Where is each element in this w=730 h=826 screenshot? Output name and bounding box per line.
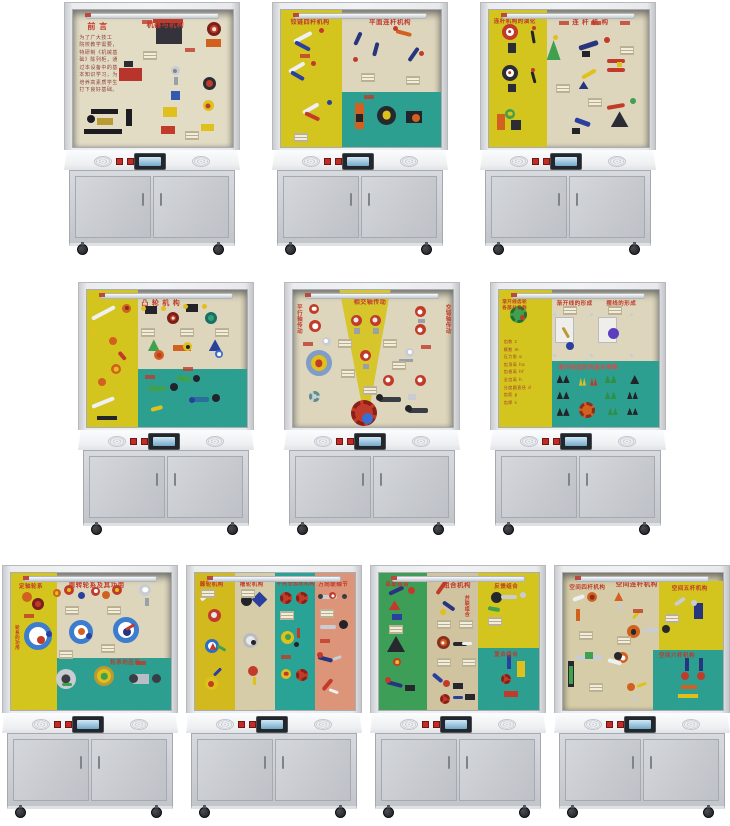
cabinet-door-left xyxy=(75,176,151,238)
model-tri xyxy=(579,81,589,89)
display-case: 机器与机构前 言为了广大技工 院校教学需要， 特研制《机械基 础》陈列柜，通 过… xyxy=(64,2,240,150)
caster-wheel xyxy=(519,807,530,818)
control-screen xyxy=(134,153,166,170)
panel-label: 棘轮机构 xyxy=(200,581,224,589)
cabinet-door-right xyxy=(153,176,229,238)
speaker-grille-icon xyxy=(108,436,126,447)
model-tag xyxy=(633,609,643,613)
model-rect xyxy=(508,43,516,53)
model-rect xyxy=(124,61,133,67)
caster-wheel xyxy=(91,524,102,535)
caster-wheel xyxy=(421,244,432,255)
model-hub xyxy=(418,378,423,383)
door-handle xyxy=(80,756,82,769)
indicator-button xyxy=(127,158,134,165)
model-hub xyxy=(418,309,423,314)
model-hub xyxy=(173,69,177,73)
model-disc xyxy=(553,35,558,40)
model-rect xyxy=(97,118,113,125)
speaker-grille-icon xyxy=(584,719,602,730)
cabinet-jx07: 定轴轮系周转轮系及其功用轮系的应用轮系的功用 xyxy=(2,565,178,818)
model-card xyxy=(617,636,631,645)
model-hub xyxy=(210,317,213,320)
screen-display xyxy=(629,720,651,729)
cabinet-door-right xyxy=(167,456,243,518)
model-rect xyxy=(126,109,132,126)
model-disc xyxy=(383,375,394,386)
panel-label: 连杆机构的演化 xyxy=(494,18,536,26)
model-tag xyxy=(559,21,569,25)
control-deck xyxy=(78,430,254,450)
door-handle xyxy=(282,756,284,769)
model-card xyxy=(363,386,377,395)
speaker-grille-icon xyxy=(400,156,418,167)
model-disc xyxy=(46,631,52,637)
model-bar xyxy=(462,642,472,645)
model-rect xyxy=(508,84,516,92)
indicator-button xyxy=(249,721,256,728)
model-hub xyxy=(386,378,391,383)
fluorescent-lamp xyxy=(576,576,709,582)
cabinet-door-left xyxy=(491,176,567,238)
model-hub xyxy=(631,629,637,635)
cabinet-base xyxy=(559,733,725,809)
model-card xyxy=(215,328,229,337)
control-screen xyxy=(550,153,582,170)
caster-wheel xyxy=(629,244,640,255)
display-backboard: 定轴轮系周转轮系及其功用轮系的应用轮系的功用 xyxy=(10,572,172,711)
model-disc xyxy=(109,337,117,345)
model-disc xyxy=(53,589,61,597)
panel-label: 空间六杆机构 xyxy=(659,652,695,660)
panel-label: 空间四杆机构 xyxy=(569,584,605,592)
display-backboard: 凸 轮 机 构 xyxy=(86,289,248,428)
cabinet-door-left xyxy=(13,739,89,801)
model-disc xyxy=(205,312,217,324)
door-handle xyxy=(650,756,652,769)
model-gear xyxy=(440,694,450,704)
door-handle xyxy=(156,473,158,486)
panel-label: 连 杆 机 构 xyxy=(572,18,608,28)
model-card xyxy=(320,609,334,618)
caster-wheel xyxy=(567,807,578,818)
panel-label: 铰链四杆机构 xyxy=(291,18,330,27)
model-hub xyxy=(101,673,107,679)
model-disc xyxy=(415,375,426,386)
model-disc xyxy=(342,594,347,599)
model-disc xyxy=(590,354,593,357)
model-disc xyxy=(203,77,216,90)
model-card xyxy=(141,328,155,337)
control-deck xyxy=(2,713,178,733)
fluorescent-lamp xyxy=(306,293,439,299)
model-hub xyxy=(125,306,129,310)
model-rect xyxy=(418,319,425,323)
caster-wheel xyxy=(383,807,394,818)
cabinet-door-right xyxy=(569,176,645,238)
speaker-grille-icon xyxy=(206,436,224,447)
model-disc xyxy=(590,313,593,316)
caster-wheel xyxy=(285,244,296,255)
model-disc xyxy=(531,68,535,72)
product-grid: 机器与机构前 言为了广大技工 院校教学需要， 特研制《机械基 础》陈列柜，通 过… xyxy=(0,2,730,818)
model-hub xyxy=(157,353,162,358)
model-disc xyxy=(205,677,218,690)
model-hub xyxy=(285,634,291,640)
model-bar xyxy=(578,40,599,51)
model-bar xyxy=(575,117,592,127)
model-rect xyxy=(373,328,379,334)
model-disc xyxy=(353,57,358,62)
model-hub xyxy=(315,360,322,367)
model-rect xyxy=(354,328,360,334)
model-hub xyxy=(211,612,217,618)
model-bar xyxy=(572,594,585,602)
speaker-grille-icon xyxy=(94,156,112,167)
model-tag xyxy=(183,367,193,371)
cabinet-base xyxy=(277,170,443,246)
model-disc xyxy=(78,628,85,635)
fluorescent-lamp xyxy=(208,576,341,582)
model-card xyxy=(101,644,115,653)
speaker-grille-icon xyxy=(130,719,148,730)
display-case: 相交轴传动平行轴传动交错轴传动 xyxy=(284,282,460,430)
control-screen xyxy=(354,433,386,450)
panel-label: 并联组合 xyxy=(462,595,470,617)
model-bar xyxy=(353,31,363,45)
model-disc xyxy=(437,636,450,649)
model-hub xyxy=(508,111,513,116)
model-disc xyxy=(86,633,92,639)
panel-label: 轮系的功用 xyxy=(13,625,20,650)
speaker-grille-icon xyxy=(314,436,332,447)
caster-wheel xyxy=(227,524,238,535)
model-rect xyxy=(392,614,402,620)
lamp-end-sticker xyxy=(85,13,91,17)
model-card xyxy=(65,606,79,615)
model-disc xyxy=(318,594,323,599)
panel-label: 齿数 z xyxy=(504,339,517,345)
model-tag xyxy=(300,54,310,58)
cabinet-jx01: 机器与机构前 言为了广大技工 院校教学需要， 特研制《机械基 础》陈列柜，通 过… xyxy=(64,2,240,255)
caster-wheel xyxy=(151,807,162,818)
cabinet-row: 定轴轮系周转轮系及其功用轮系的应用轮系的功用棘轮机构槽轮机构不完全齿轮机构万向联… xyxy=(2,565,730,818)
display-case: 铰链四杆机构平面连杆机构 xyxy=(272,2,448,150)
model-tri xyxy=(611,111,629,127)
model-disc xyxy=(370,315,381,326)
model-rect xyxy=(569,666,573,684)
panel-label: 相交轴传动 xyxy=(354,298,387,307)
fluorescent-lamp xyxy=(392,576,525,582)
cabinet-door-right xyxy=(91,739,167,801)
control-deck xyxy=(480,150,656,170)
speaker-grille-icon xyxy=(314,719,332,730)
speaker-grille-icon xyxy=(192,156,210,167)
model-rect xyxy=(619,603,622,611)
fluorescent-lamp xyxy=(502,13,635,19)
model-disc xyxy=(56,669,76,689)
model-hub xyxy=(208,681,214,687)
door-handle xyxy=(98,756,100,769)
model-rect xyxy=(405,685,415,691)
panel-label: 不完全齿轮机构 xyxy=(277,581,316,589)
model-rect xyxy=(582,51,590,57)
display-case: 凸 轮 机 构 xyxy=(78,282,254,430)
display-backboard: 空间连杆机构空间四杆机构空间五杆机构空间六杆机构 xyxy=(562,572,724,711)
indicator-button xyxy=(336,438,343,445)
model-rect xyxy=(163,107,177,117)
door-handle xyxy=(466,756,468,769)
model-card xyxy=(201,589,215,598)
cabinet-door-left xyxy=(89,456,165,518)
model-gear xyxy=(501,674,511,684)
model-disc xyxy=(167,312,179,324)
model-card xyxy=(588,98,602,107)
model-bar xyxy=(607,103,625,110)
panel-label: 齿根高 hf xyxy=(504,369,524,375)
cabinet-base xyxy=(191,733,357,809)
model-disc xyxy=(405,348,414,357)
model-disc xyxy=(215,350,223,358)
model-disc xyxy=(415,306,426,317)
model-disc xyxy=(566,342,574,350)
model-hub xyxy=(441,641,444,644)
cabinet-jx06: 渐开线的形成摆线的形成渐开线齿轮的基本参数渐开线齿轮 各部分名称齿数 z模数 m… xyxy=(490,282,666,535)
indicator-button xyxy=(65,721,72,728)
cabinet-base xyxy=(69,170,235,246)
model-hub xyxy=(172,317,175,320)
model-hub xyxy=(312,323,318,329)
model-tri xyxy=(547,40,561,60)
model-disc xyxy=(102,591,110,599)
model-rect xyxy=(253,677,256,685)
model-card xyxy=(620,46,634,55)
panel-label: 周转轮系及其功用 xyxy=(69,581,125,591)
model-disc xyxy=(32,598,44,610)
model-disc xyxy=(415,324,426,335)
model-card xyxy=(107,606,121,615)
caster-wheel xyxy=(703,807,714,818)
fluorescent-lamp xyxy=(512,293,645,299)
model-rect xyxy=(504,691,518,697)
model-card xyxy=(389,625,403,634)
model-tag xyxy=(320,639,330,643)
speaker-grille-icon xyxy=(32,719,50,730)
model-bar xyxy=(407,47,419,62)
model-tag xyxy=(24,614,34,618)
fluorescent-lamp xyxy=(24,576,157,582)
panel-label: 分度圆直径 d xyxy=(504,385,531,391)
display-case: 串联组合组合机构并联组合反馈组合复合组合 xyxy=(370,565,546,713)
model-rect xyxy=(497,114,505,130)
model-disc xyxy=(78,592,85,599)
display-case: 空间连杆机构空间四杆机构空间五杆机构空间六杆机构 xyxy=(554,565,730,713)
model-card xyxy=(185,131,199,140)
panel-label: 齿厚 s xyxy=(504,400,517,406)
caster-wheel xyxy=(335,807,346,818)
model-card xyxy=(556,84,570,93)
model-card xyxy=(462,658,476,667)
model-card xyxy=(406,76,420,85)
indicator-button xyxy=(116,158,123,165)
control-screen xyxy=(148,433,180,450)
speaker-grille-icon xyxy=(400,719,418,730)
model-disc xyxy=(111,364,121,374)
display-backboard: 连杆机构的演化连 杆 机 构 xyxy=(488,9,650,148)
screen-display xyxy=(555,157,577,166)
cabinet-base xyxy=(83,450,249,526)
model-rect xyxy=(572,128,580,134)
model-hub xyxy=(142,587,148,593)
model-disc xyxy=(98,378,106,386)
model-disc xyxy=(553,313,556,316)
model-hub xyxy=(217,352,221,356)
control-deck xyxy=(186,713,362,733)
model-tag xyxy=(145,375,155,379)
model-card xyxy=(241,589,255,598)
cabinet-jx02: 铰链四杆机构平面连杆机构 xyxy=(272,2,448,255)
speaker-grille-icon xyxy=(618,436,636,447)
indicator-button xyxy=(347,438,354,445)
control-screen xyxy=(624,716,656,733)
model-disc xyxy=(207,22,221,36)
model-disc xyxy=(183,342,192,351)
caster-wheel xyxy=(493,244,504,255)
panel-label: 槽轮机构 xyxy=(240,581,264,589)
model-rect xyxy=(517,661,525,677)
model-bar xyxy=(372,42,379,57)
door-handle xyxy=(174,473,176,486)
model-rect xyxy=(174,77,178,85)
model-disc xyxy=(351,315,362,326)
indicator-button xyxy=(141,438,148,445)
panel-label: 空间五杆机构 xyxy=(672,585,708,593)
model-disc xyxy=(630,354,633,357)
indicator-button xyxy=(617,721,624,728)
caster-wheel xyxy=(77,244,88,255)
control-deck xyxy=(272,150,448,170)
indicator-button xyxy=(335,158,342,165)
panel-label: 定轴轮系 xyxy=(19,583,43,591)
model-card xyxy=(383,339,397,348)
model-card xyxy=(392,361,406,370)
door-handle xyxy=(586,473,588,486)
door-handle xyxy=(632,756,634,769)
panel-label: 平面连杆机构 xyxy=(369,18,411,28)
speaker-grille-icon xyxy=(608,156,626,167)
model-hub xyxy=(213,27,217,31)
model-bar xyxy=(62,683,72,686)
lamp-end-sticker xyxy=(99,293,105,297)
display-case: 定轴轮系周转轮系及其功用轮系的应用轮系的功用 xyxy=(2,565,178,713)
model-card xyxy=(361,73,375,82)
model-hub xyxy=(418,327,423,332)
model-bar xyxy=(320,625,336,629)
model-card xyxy=(437,658,451,667)
caster-wheel xyxy=(639,524,650,535)
model-card xyxy=(589,683,603,692)
model-disc xyxy=(37,636,45,644)
model-disc xyxy=(322,337,331,346)
model-card xyxy=(437,620,451,629)
model-gear xyxy=(280,592,292,604)
screen-display xyxy=(261,720,283,729)
model-rect xyxy=(84,129,122,134)
panel-label: 齿顶高 ha xyxy=(504,362,525,368)
door-handle xyxy=(368,193,370,206)
panel-label: 模数 m xyxy=(504,347,519,353)
model-rect xyxy=(585,652,593,659)
panel-label: 万向联轴节 xyxy=(318,581,348,589)
model-card xyxy=(459,620,473,629)
panel-label: 串联组合 xyxy=(385,581,409,589)
model-rect xyxy=(681,685,697,689)
model-tri xyxy=(614,592,623,601)
door-handle xyxy=(362,473,364,486)
panel-label: 前 言 xyxy=(87,21,107,33)
control-deck xyxy=(284,430,460,450)
model-card xyxy=(280,611,294,620)
door-handle xyxy=(558,193,560,206)
door-handle xyxy=(350,193,352,206)
model-disc xyxy=(377,106,396,125)
model-rect xyxy=(356,114,363,122)
fluorescent-lamp xyxy=(86,13,219,19)
model-rect xyxy=(201,124,214,131)
cabinet-door-left xyxy=(565,739,641,801)
model-rect xyxy=(617,62,622,67)
cabinet-row: 机器与机构前 言为了广大技工 院校教学需要， 特研制《机械基 础》陈列柜，通 过… xyxy=(64,2,730,255)
model-rect xyxy=(363,364,369,369)
caster-wheel xyxy=(199,807,210,818)
model-disc xyxy=(309,320,321,332)
panel-label: 渐开线齿轮的基本参数 xyxy=(558,364,618,372)
model-bar xyxy=(607,68,625,72)
control-deck xyxy=(64,150,240,170)
panel-label: 凸 轮 机 构 xyxy=(141,298,180,309)
model-disc xyxy=(281,631,294,644)
cabinet-base xyxy=(485,170,651,246)
model-disc xyxy=(248,666,258,676)
panel-label: 齿距 p xyxy=(504,392,518,398)
model-rect xyxy=(408,394,416,400)
model-rect xyxy=(161,126,175,134)
cabinet-door-right xyxy=(275,739,351,801)
model-disc xyxy=(309,304,319,314)
lamp-end-sticker xyxy=(305,293,311,297)
model-rect xyxy=(297,628,300,638)
door-handle xyxy=(160,193,162,206)
model-disc xyxy=(419,51,424,56)
indicator-button xyxy=(433,721,440,728)
control-screen xyxy=(342,153,374,170)
color-panel xyxy=(379,573,427,710)
cabinet-jx03: 连杆机构的演化连 杆 机 构 xyxy=(480,2,656,255)
model-disc xyxy=(122,304,131,313)
model-hub xyxy=(363,353,368,358)
model-tag xyxy=(620,21,630,25)
display-case: 连杆机构的演化连 杆 机 构 xyxy=(480,2,656,150)
model-disc xyxy=(171,66,180,75)
model-disc xyxy=(633,696,638,701)
indicator-button xyxy=(130,438,137,445)
panel-label: 渐开线齿轮 各部分名称 xyxy=(502,300,527,314)
model-disc xyxy=(627,683,635,691)
control-screen xyxy=(256,716,288,733)
color-panel xyxy=(281,10,342,147)
door-handle xyxy=(142,193,144,206)
fluorescent-lamp xyxy=(294,13,427,19)
